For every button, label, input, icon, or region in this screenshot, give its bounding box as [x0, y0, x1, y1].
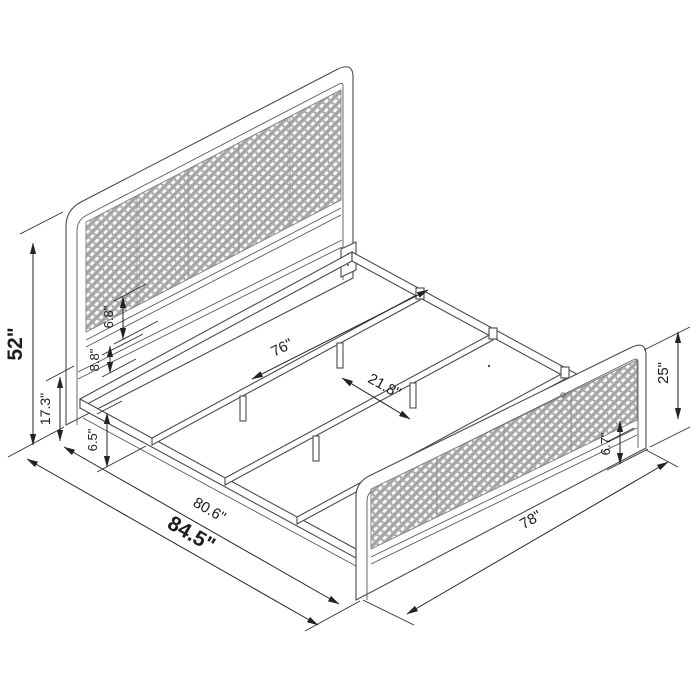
bed-dimension-diagram: 52" 17.3" 6.8" 8.8" 6.5" [0, 0, 700, 700]
diagram-canvas: 52" 17.3" 6.8" 8.8" 6.5" [0, 0, 700, 700]
label-headboard-leg: 17.3" [37, 393, 53, 425]
label-slat-length: 76" [268, 335, 295, 360]
label-footboard-height: 25" [655, 362, 672, 384]
bed-frame-drawing [66, 67, 646, 600]
label-gap-upper: 6.8" [101, 305, 116, 328]
dim-overall-height: 52" [4, 212, 64, 457]
dim-footboard-height: 25" [644, 327, 690, 447]
label-gap-lower: 8.8" [87, 348, 102, 371]
rail-hole [488, 365, 490, 367]
label-frame-length: 80.6" [190, 494, 228, 526]
dim-overall-length: 84.5" [27, 459, 318, 625]
label-clearance: 6.5" [85, 428, 100, 451]
label-footboard-gap: 6.7" [598, 432, 613, 455]
left-side-rail [80, 399, 356, 558]
label-overall-height: 52" [4, 327, 27, 360]
